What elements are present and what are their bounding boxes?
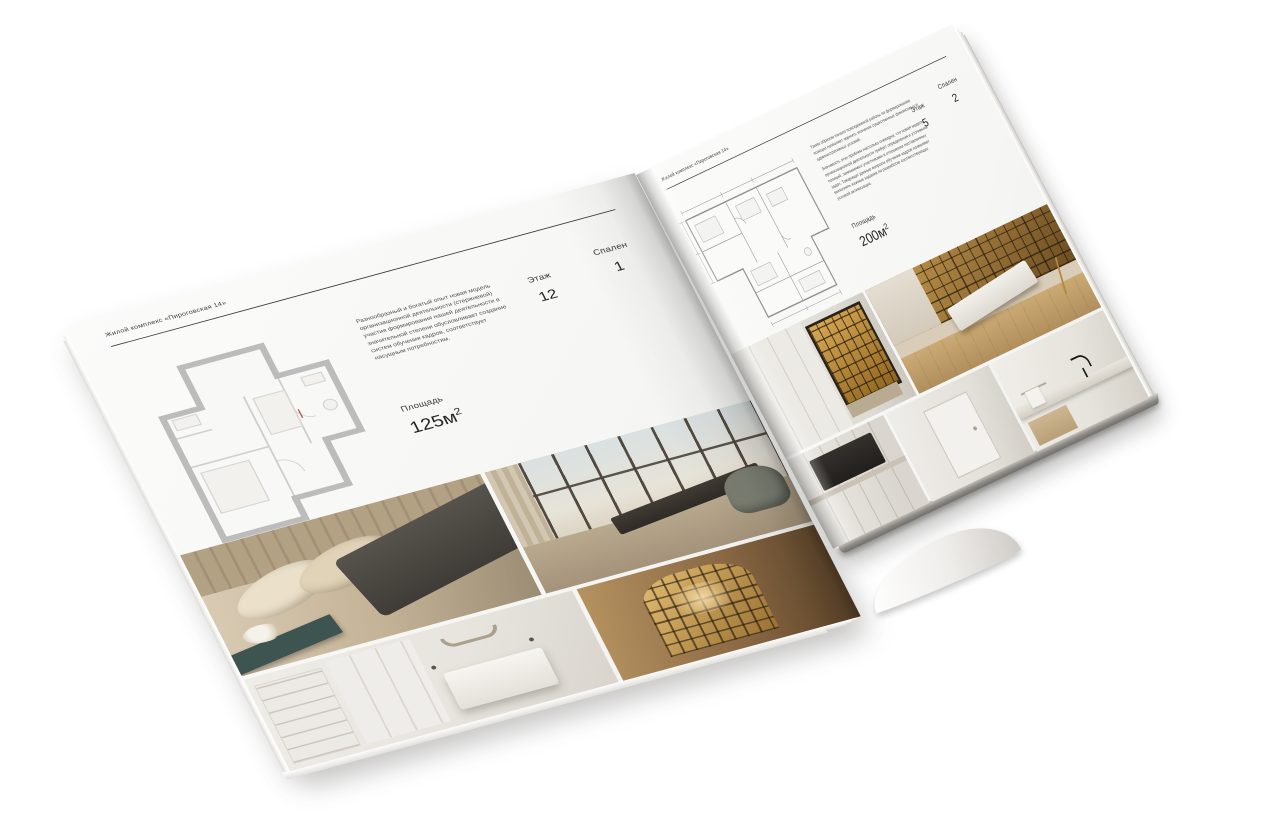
- left-floor-stat: Этаж 12: [502, 265, 587, 313]
- left-page-description: Разнообразный и богатый опыт новая модел…: [355, 280, 520, 362]
- wall-lamp: [529, 637, 535, 642]
- wall-lamp: [431, 665, 437, 670]
- right-area-stat: Площадь 200м2: [851, 202, 911, 250]
- left-bedrooms-stat: Спален 1: [579, 237, 652, 282]
- arc-wall-decor: [440, 624, 502, 650]
- white-bed: [442, 647, 559, 710]
- left-area-stat: Площадь 125м2: [399, 384, 498, 438]
- white-door: [923, 391, 1002, 479]
- black-faucet: [1070, 352, 1092, 373]
- brochure-mockup-scene: Жилой комплекс «Пироговская 14» Разнообр…: [0, 0, 1280, 835]
- left-page-header: Жилой комплекс «Пироговская 14»: [104, 195, 611, 338]
